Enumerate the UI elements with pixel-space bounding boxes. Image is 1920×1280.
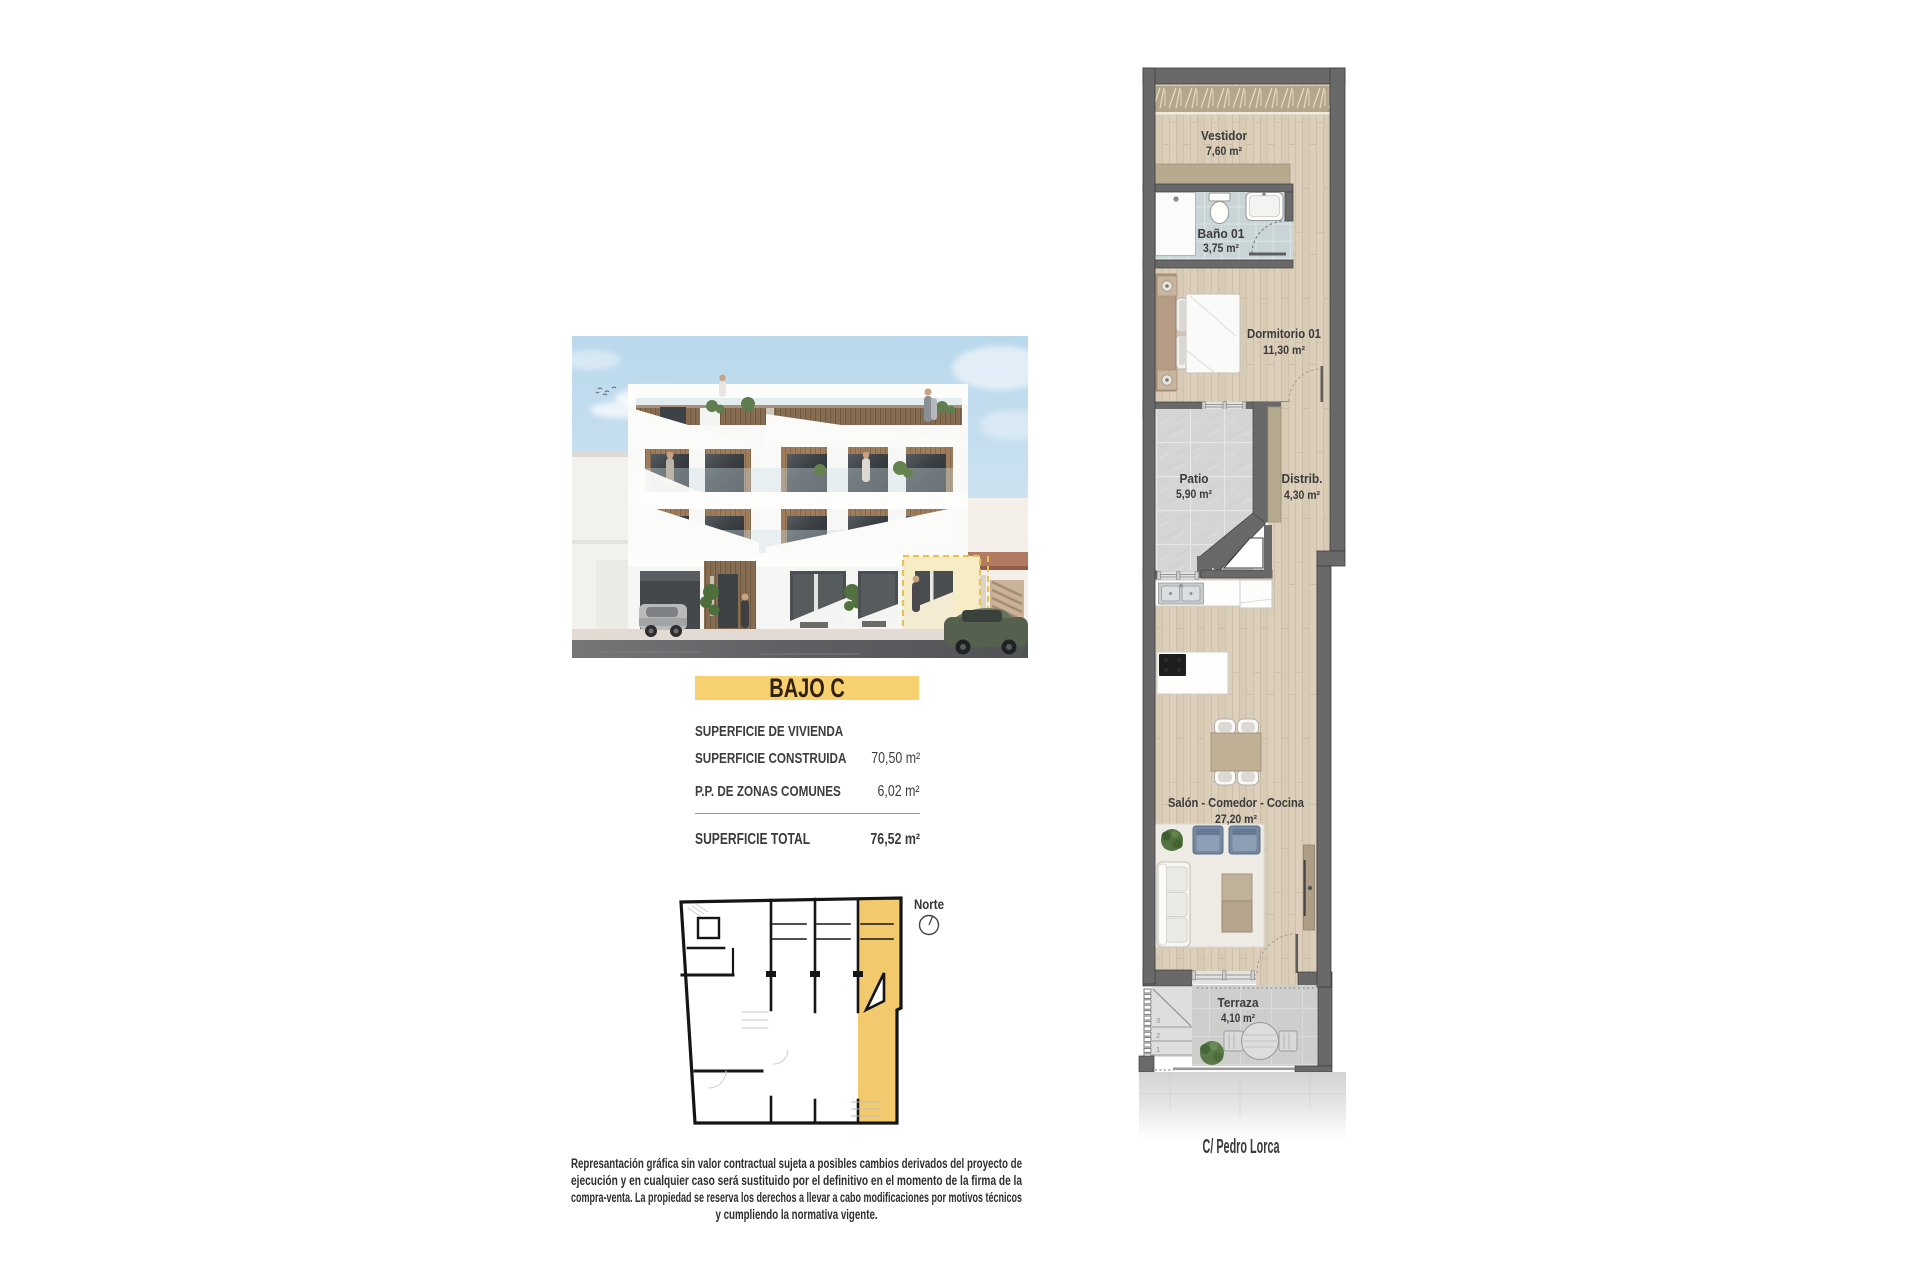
svg-text:C/ Pedro Lorca: C/ Pedro Lorca: [1203, 1136, 1280, 1158]
svg-text:3: 3: [1156, 1016, 1160, 1025]
svg-text:Norte: Norte: [914, 897, 944, 912]
svg-text:Distrib.: Distrib.: [1282, 471, 1323, 486]
svg-text:2: 2: [1156, 1031, 1160, 1040]
svg-text:Dormitorio 01: Dormitorio 01: [1247, 326, 1321, 341]
svg-text:11,30 m²: 11,30 m²: [1263, 345, 1305, 357]
svg-text:3,75 m²: 3,75 m²: [1203, 243, 1239, 255]
svg-text:7,60 m²: 7,60 m²: [1206, 146, 1242, 158]
svg-text:Baño 01: Baño 01: [1198, 226, 1245, 241]
svg-text:4,10 m²: 4,10 m²: [1221, 1013, 1255, 1025]
svg-text:Patio: Patio: [1180, 471, 1209, 486]
svg-text:27,20 m²: 27,20 m²: [1215, 814, 1257, 826]
svg-text:1: 1: [1156, 1045, 1160, 1054]
svg-text:Salón - Comedor - Cocina: Salón - Comedor - Cocina: [1168, 795, 1305, 810]
svg-text:5,90 m²: 5,90 m²: [1176, 489, 1212, 501]
svg-text:Vestidor: Vestidor: [1201, 128, 1247, 143]
svg-text:4,30 m²: 4,30 m²: [1284, 490, 1320, 502]
svg-text:Terraza: Terraza: [1218, 995, 1260, 1010]
